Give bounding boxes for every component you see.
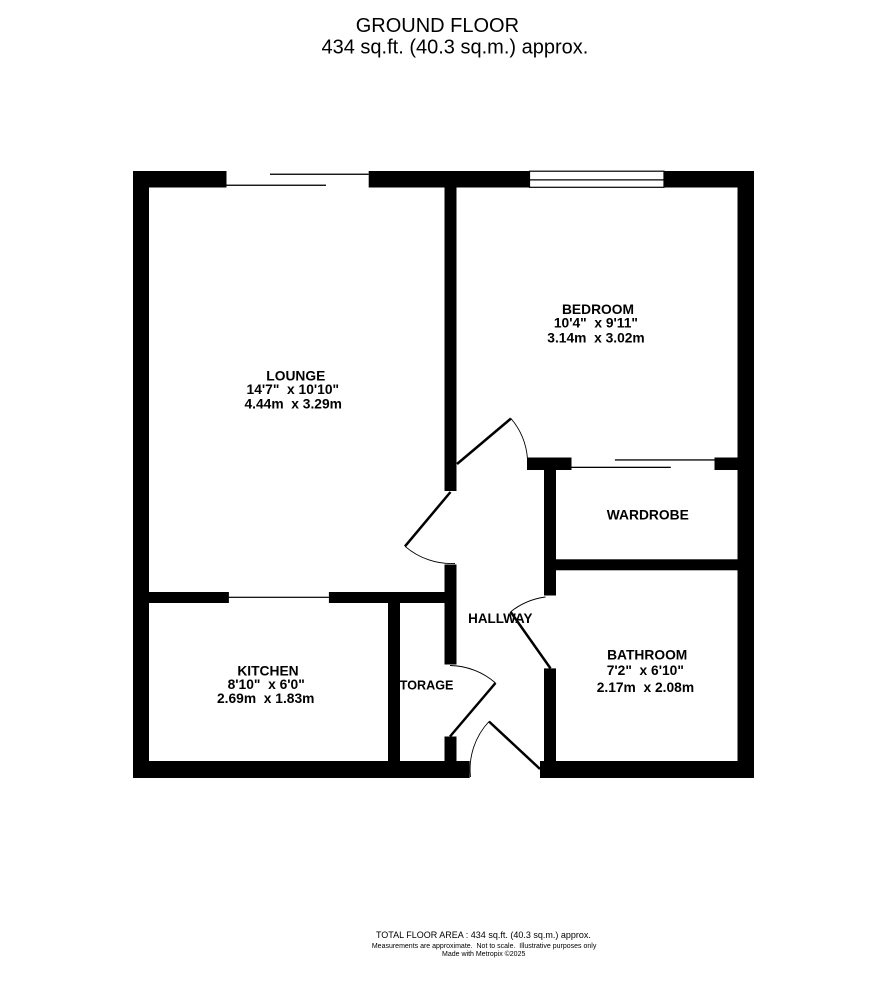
svg-text:2.69m x 1.83m: 2.69m x 1.83m [217, 691, 314, 706]
svg-text:STORAGE: STORAGE [391, 678, 453, 692]
svg-text:TOTAL FLOOR AREA : 434 sq.ft.: TOTAL FLOOR AREA : 434 sq.ft. (40.3 sq.m… [376, 930, 591, 940]
svg-text:2.17m x 2.08m: 2.17m x 2.08m [597, 680, 694, 695]
svg-text:BEDROOM: BEDROOM [562, 302, 634, 317]
svg-text:HALLWAY: HALLWAY [468, 611, 532, 626]
svg-text:7'2" x 6'10": 7'2" x 6'10" [607, 663, 684, 678]
svg-text:8'10" x 6'0": 8'10" x 6'0" [228, 677, 305, 692]
svg-text:4.44m x 3.29m: 4.44m x 3.29m [244, 396, 341, 411]
svg-text:GROUND FLOOR: GROUND FLOOR [356, 15, 519, 37]
svg-text:14'7" x 10'10": 14'7" x 10'10" [247, 382, 340, 397]
svg-text:Measurements are approximate.: Measurements are approximate. Not to sca… [372, 943, 597, 950]
svg-text:Made with Metropix ©2025: Made with Metropix ©2025 [442, 950, 525, 958]
svg-text:3.14m x 3.02m: 3.14m x 3.02m [547, 331, 644, 346]
svg-text:WARDROBE: WARDROBE [607, 508, 689, 523]
svg-text:10'4" x 9'11": 10'4" x 9'11" [554, 316, 638, 331]
svg-text:434 sq.ft. (40.3 sq.m.) approx: 434 sq.ft. (40.3 sq.m.) approx. [322, 37, 589, 59]
svg-text:BATHROOM: BATHROOM [607, 648, 687, 663]
